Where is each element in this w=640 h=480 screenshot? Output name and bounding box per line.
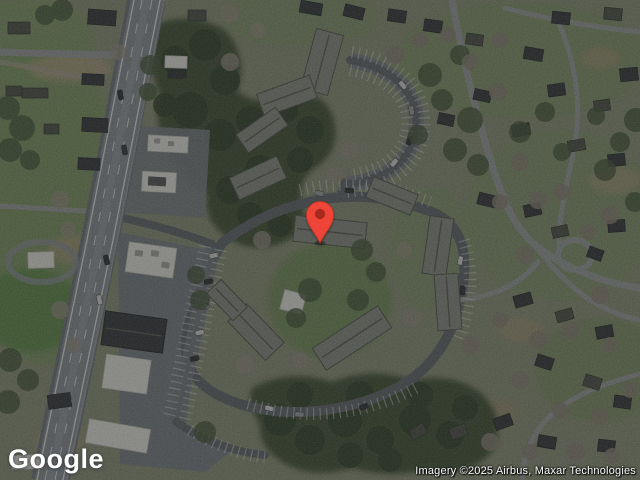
- google-logo[interactable]: Google: [8, 444, 104, 475]
- map-viewport[interactable]: Google Imagery ©2025 Airbus, Maxar Techn…: [0, 0, 640, 480]
- pin-inner-dot: [315, 209, 325, 219]
- imagery-attribution: Imagery ©2025 Airbus, Maxar Technologies: [415, 465, 636, 477]
- satellite-imagery: [0, 0, 640, 480]
